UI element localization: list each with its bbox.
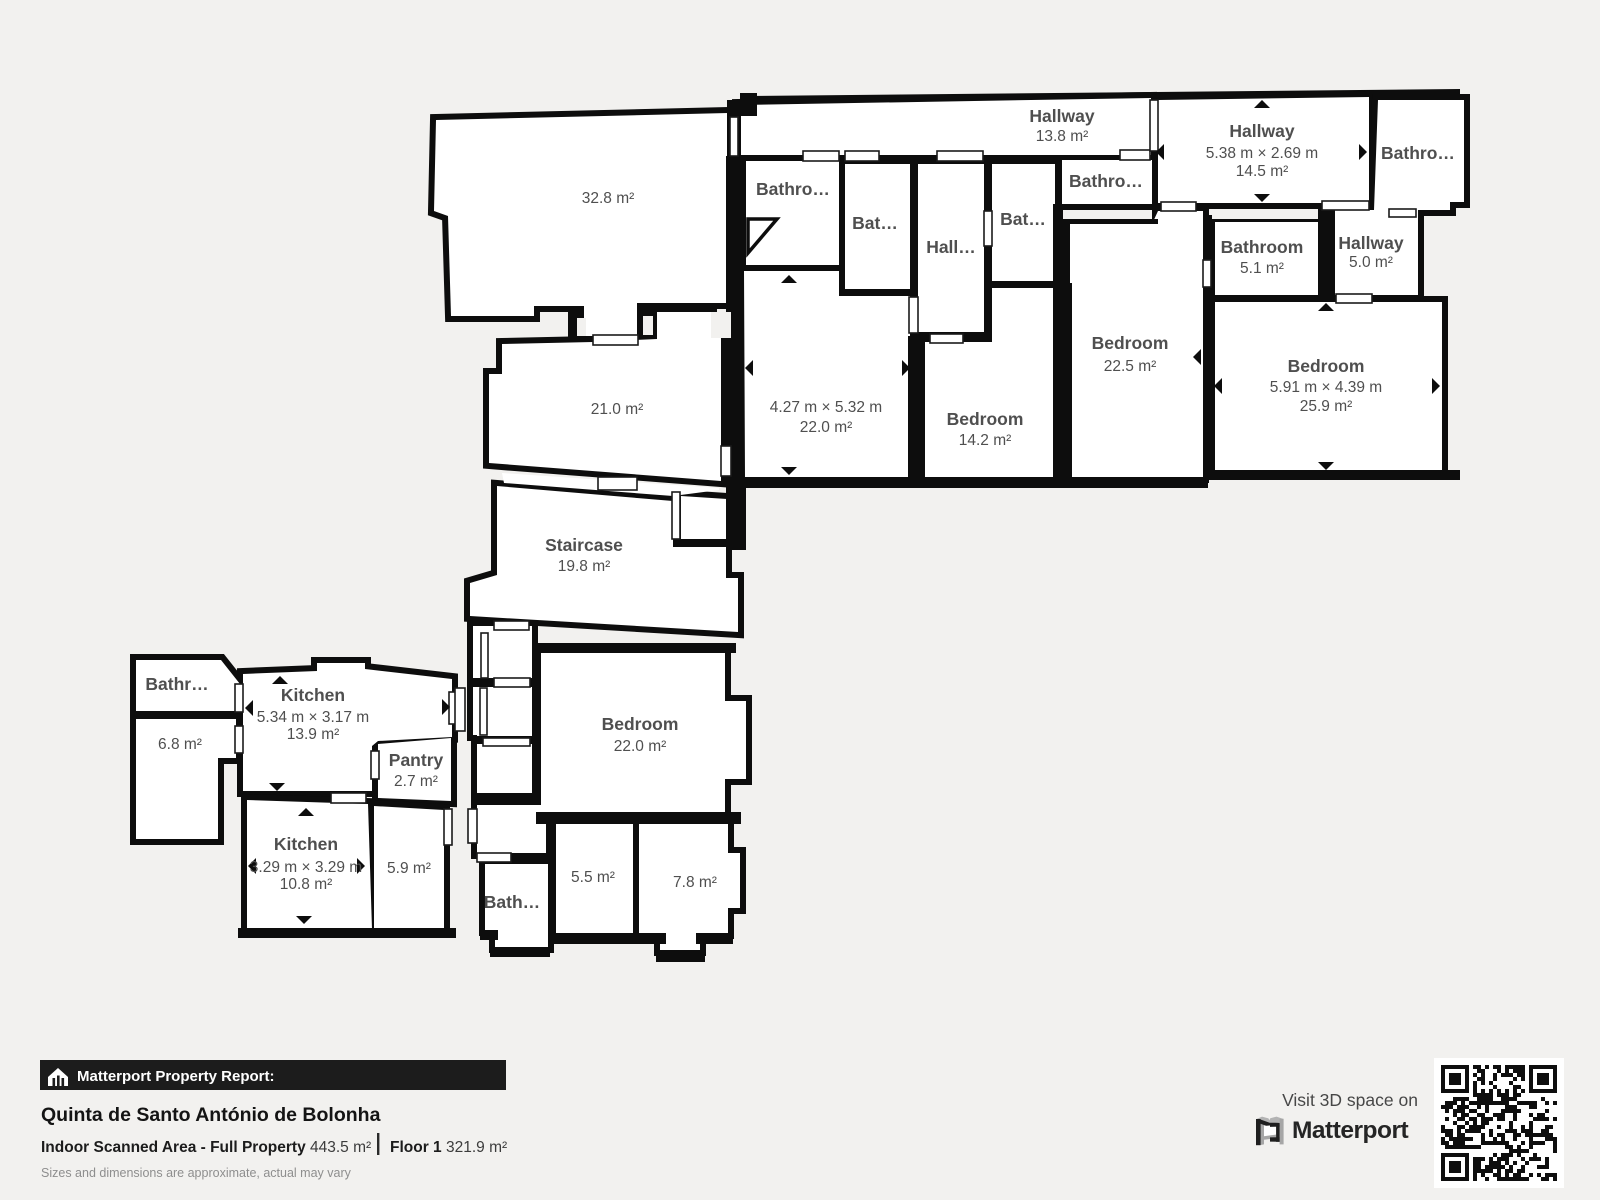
svg-text:21.0 m²: 21.0 m² — [591, 401, 644, 418]
svg-text:5.38 m × 2.69 m: 5.38 m × 2.69 m — [1206, 145, 1318, 162]
svg-text:Hallway: Hallway — [1338, 233, 1403, 253]
svg-text:5.9 m²: 5.9 m² — [387, 860, 431, 877]
svg-text:5.34 m × 3.17 m: 5.34 m × 3.17 m — [257, 709, 369, 726]
svg-text:5.5 m²: 5.5 m² — [571, 869, 615, 886]
svg-text:Bedroom: Bedroom — [1288, 356, 1365, 376]
svg-text:Kitchen: Kitchen — [281, 685, 345, 705]
svg-text:Hall…: Hall… — [926, 237, 976, 257]
svg-text:Bedroom: Bedroom — [947, 409, 1024, 429]
svg-text:Matterport Property Report:: Matterport Property Report: — [77, 1068, 275, 1085]
svg-text:Quinta de Santo António de Bol: Quinta de Santo António de Bolonha — [41, 1104, 381, 1126]
svg-text:Floor 1 321.9 m²: Floor 1 321.9 m² — [390, 1139, 507, 1156]
svg-text:5.1 m²: 5.1 m² — [1240, 260, 1284, 277]
svg-text:32.8 m²: 32.8 m² — [582, 190, 635, 207]
svg-text:13.9 m²: 13.9 m² — [287, 726, 340, 743]
svg-text:Bat…: Bat… — [1000, 209, 1046, 229]
svg-text:Hallway: Hallway — [1029, 106, 1094, 126]
svg-text:3.29 m × 3.29 m: 3.29 m × 3.29 m — [250, 859, 362, 876]
svg-text:Sizes and dimensions are appro: Sizes and dimensions are approximate, ac… — [41, 1166, 352, 1180]
svg-text:22.5 m²: 22.5 m² — [1104, 358, 1157, 375]
svg-text:14.5 m²: 14.5 m² — [1236, 163, 1289, 180]
svg-text:Visit 3D space on: Visit 3D space on — [1282, 1090, 1418, 1110]
svg-text:22.0 m²: 22.0 m² — [800, 419, 853, 436]
svg-text:5.91 m × 4.39 m: 5.91 m × 4.39 m — [1270, 379, 1382, 396]
svg-text:6.8 m²: 6.8 m² — [158, 736, 202, 753]
svg-text:Bathro…: Bathro… — [756, 179, 830, 199]
svg-text:14.2 m²: 14.2 m² — [959, 432, 1012, 449]
svg-text:4.27 m × 5.32 m: 4.27 m × 5.32 m — [770, 399, 882, 416]
svg-text:Bedroom: Bedroom — [602, 714, 679, 734]
svg-text:19.8 m²: 19.8 m² — [558, 558, 611, 575]
svg-text:22.0 m²: 22.0 m² — [614, 738, 667, 755]
svg-text:Bathro…: Bathro… — [1381, 143, 1455, 163]
svg-text:25.9 m²: 25.9 m² — [1300, 398, 1353, 415]
svg-text:Bathr…: Bathr… — [145, 674, 208, 694]
svg-text:Hallway: Hallway — [1229, 121, 1294, 141]
svg-text:5.0 m²: 5.0 m² — [1349, 254, 1393, 271]
svg-text:10.8 m²: 10.8 m² — [280, 876, 333, 893]
svg-text:7.8 m²: 7.8 m² — [673, 874, 717, 891]
svg-text:Bat…: Bat… — [852, 213, 898, 233]
svg-text:Kitchen: Kitchen — [274, 834, 338, 854]
svg-text:13.8 m²: 13.8 m² — [1036, 128, 1089, 145]
svg-text:Matterport: Matterport — [1292, 1117, 1408, 1144]
svg-text:Bedroom: Bedroom — [1092, 333, 1169, 353]
svg-text:Indoor Scanned Area - Full Pro: Indoor Scanned Area - Full Property 443.… — [41, 1139, 371, 1156]
svg-text:Staircase: Staircase — [545, 535, 623, 555]
svg-text:Bathroom: Bathroom — [1221, 237, 1304, 257]
svg-text:2.7 m²: 2.7 m² — [394, 773, 438, 790]
svg-text:Pantry: Pantry — [389, 750, 444, 770]
svg-text:Bath…: Bath… — [484, 892, 540, 912]
svg-text:Bathro…: Bathro… — [1069, 171, 1143, 191]
